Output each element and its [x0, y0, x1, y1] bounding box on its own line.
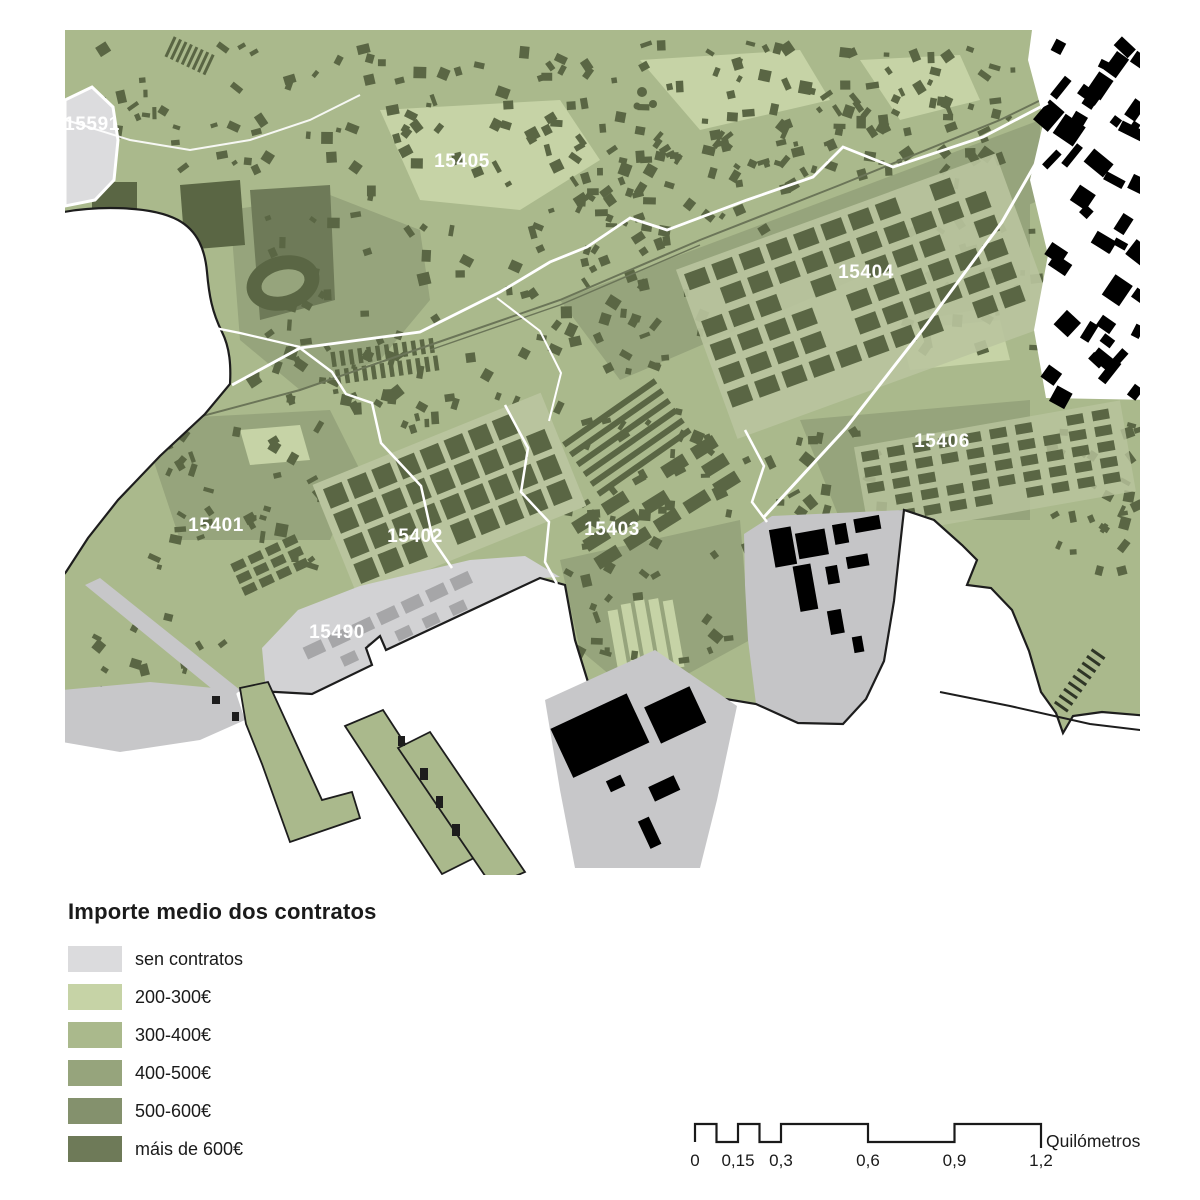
map-page: 1559115405154041540615401154021540315490…	[0, 0, 1200, 1200]
scale-bar-unit: Quilómetros	[1046, 1131, 1141, 1151]
outside-area	[1028, 30, 1156, 409]
legend-row-over-600: máis de 600€	[68, 1136, 377, 1162]
legend-swatch-400-500	[68, 1060, 122, 1086]
map-layers: 1559115405154041540615401154021540315490	[40, 30, 1156, 890]
legend-swatch-200-300	[68, 984, 122, 1010]
district-label-15401: 15401	[188, 515, 244, 536]
legend-rows: sen contratos 200-300€ 300-400€ 400-500€…	[68, 946, 377, 1162]
legend-label: 200-300€	[135, 987, 211, 1008]
legend-title: Importe medio dos contratos	[68, 899, 377, 925]
map-legend: Importe medio dos contratos sen contrato…	[68, 899, 377, 1162]
legend-row-500-600: 500-600€	[68, 1098, 377, 1124]
scale-tick-0.3: 0,3	[769, 1151, 793, 1170]
scale-tick-0.9: 0,9	[943, 1151, 967, 1170]
district-label-15405: 15405	[434, 151, 490, 172]
legend-swatch-500-600	[68, 1098, 122, 1124]
legend-label: 400-500€	[135, 1063, 211, 1084]
legend-row-300-400: 300-400€	[68, 1022, 377, 1048]
legend-label: máis de 600€	[135, 1139, 243, 1160]
legend-swatch-300-400	[68, 1022, 122, 1048]
legend-row-400-500: 400-500€	[68, 1060, 377, 1086]
legend-label: 300-400€	[135, 1025, 211, 1046]
district-label-15406: 15406	[914, 431, 970, 452]
district-label-15591: 15591	[64, 114, 120, 135]
scale-tick-1.2: 1,2	[1029, 1151, 1053, 1170]
legend-swatch-over-600	[68, 1136, 122, 1162]
district-label-15490: 15490	[309, 622, 365, 643]
district-label-15404: 15404	[838, 262, 894, 283]
legend-row-sen-contratos: sen contratos	[68, 946, 377, 972]
legend-label: 500-600€	[135, 1101, 211, 1122]
legend-swatch-no-contracts	[68, 946, 122, 972]
scale-tick-0.6: 0,6	[856, 1151, 880, 1170]
scale-bar: 00,150,30,60,91,2 Quilómetros	[690, 1124, 1140, 1170]
scale-tick-0: 0	[690, 1151, 699, 1170]
district-label-15403: 15403	[584, 519, 640, 540]
legend-label: sen contratos	[135, 949, 243, 970]
district-label-15402: 15402	[387, 526, 443, 547]
legend-row-200-300: 200-300€	[68, 984, 377, 1010]
scale-tick-0.15: 0,15	[721, 1151, 754, 1170]
scale-bar-line	[695, 1124, 1041, 1148]
